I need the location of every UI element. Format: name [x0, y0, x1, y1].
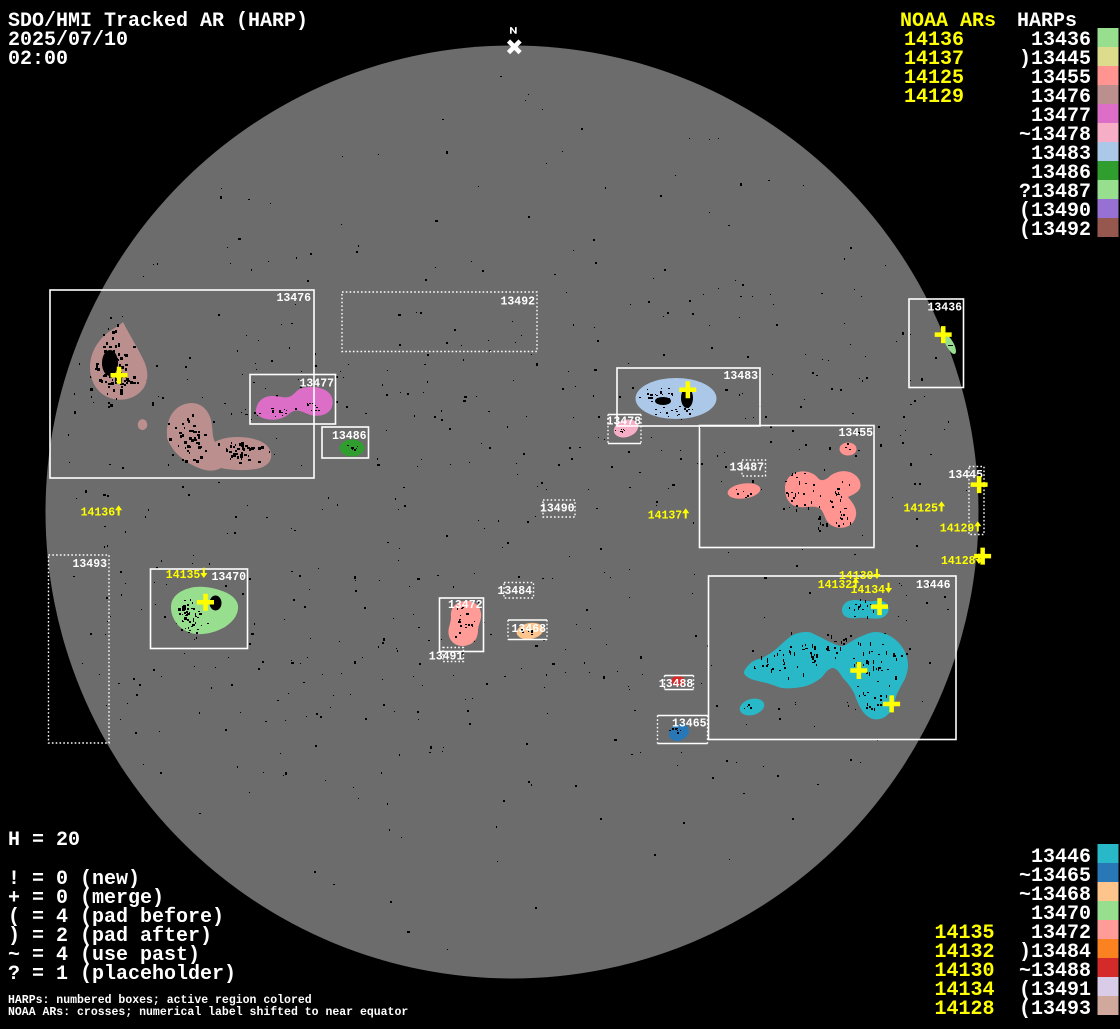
svg-text:13436: 13436 [927, 302, 962, 315]
svg-text:14129: 14129 [940, 523, 975, 536]
svg-text:13476: 13476 [276, 292, 311, 305]
svg-text:14134: 14134 [851, 584, 886, 597]
svg-text:13491: 13491 [429, 651, 464, 664]
svg-text:13455: 13455 [838, 427, 873, 440]
svg-text:14136: 14136 [81, 507, 116, 520]
svg-text:13468: 13468 [512, 623, 547, 636]
svg-text:(13493: (13493 [1019, 998, 1091, 1021]
svg-text:13488: 13488 [659, 678, 694, 691]
svg-text:13484: 13484 [498, 585, 533, 598]
svg-text:14132: 14132 [818, 579, 853, 592]
svg-text:H = 20: H = 20 [8, 829, 80, 852]
svg-text:13477: 13477 [299, 378, 334, 391]
svg-text:14128: 14128 [935, 998, 995, 1021]
svg-text:13492: 13492 [500, 296, 535, 309]
svg-text:13472: 13472 [448, 599, 483, 612]
svg-text:13446: 13446 [916, 579, 951, 592]
svg-text:14125: 14125 [904, 503, 939, 516]
svg-text:(13492: (13492 [1019, 219, 1091, 242]
svg-text:13470: 13470 [211, 571, 246, 584]
svg-text:13465: 13465 [672, 718, 707, 731]
svg-text:13487: 13487 [730, 462, 765, 475]
svg-text:14137: 14137 [648, 510, 683, 523]
svg-text:13490: 13490 [540, 503, 575, 516]
svg-text:13486: 13486 [332, 430, 367, 443]
svg-text:13478: 13478 [607, 416, 642, 429]
svg-text:14135: 14135 [166, 569, 201, 582]
svg-text:13493: 13493 [72, 558, 107, 571]
svg-text:14128: 14128 [941, 555, 976, 568]
svg-text:14129: 14129 [904, 86, 964, 109]
svg-text:? = 1 (placeholder): ? = 1 (placeholder) [8, 963, 236, 986]
svg-text:NOAA ARs: crosses; numerical l: NOAA ARs: crosses; numerical label shift… [8, 1006, 408, 1019]
svg-text:13483: 13483 [723, 370, 758, 383]
svg-text:02:00: 02:00 [8, 48, 68, 71]
